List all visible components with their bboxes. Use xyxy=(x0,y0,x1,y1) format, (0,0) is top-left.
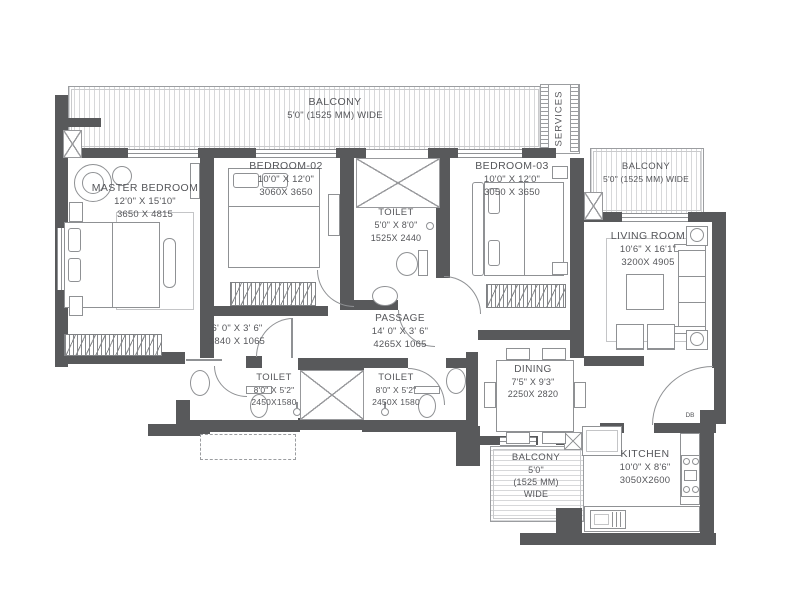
room-name: LIVING ROOM xyxy=(588,230,708,243)
wall xyxy=(446,358,468,368)
wc-bowl xyxy=(396,252,418,276)
wall xyxy=(688,212,714,222)
label-passage: PASSAGE 14' 0" X 3' 6" 4265X 1065 xyxy=(345,312,455,351)
room-size-ft: 5'0" X 8'0" xyxy=(356,219,436,232)
dining-chair xyxy=(506,432,530,444)
room-name: TOILET xyxy=(358,372,434,384)
room-name: TOILET xyxy=(356,206,436,219)
armchair-living xyxy=(616,324,644,350)
label-passage-small: 6' 0" X 3' 6" 1840 X 1065 xyxy=(180,322,294,348)
room-size-mm: 4265X 1065 xyxy=(345,338,455,351)
door-arc-bedroom-03 xyxy=(444,276,481,314)
wall xyxy=(198,148,256,158)
room-name: TOILET xyxy=(238,372,310,384)
burner xyxy=(683,486,690,493)
room-name: KITCHEN xyxy=(595,448,695,461)
chair-back-line xyxy=(616,348,644,350)
wardrobe-bedroom-03 xyxy=(486,284,566,308)
label-dining: DINING 7'5" X 9'3" 2250X 2820 xyxy=(493,364,573,400)
room-size-ft: 10'0" X 8'6" xyxy=(595,461,695,474)
wardrobe-bedroom-02 xyxy=(230,282,316,306)
wall xyxy=(63,118,101,127)
floor-plan: BALCONY 5'0" (1525 MM) WIDE SERVICES MAS… xyxy=(0,0,800,600)
wall xyxy=(298,358,364,370)
wall xyxy=(714,366,726,412)
bench-master xyxy=(163,238,176,288)
room-name: PASSAGE xyxy=(345,312,455,325)
label-living-room: LIVING ROOM 10'6" X 16'1" 3200X 4905 xyxy=(588,230,708,269)
room-name: DINING xyxy=(493,364,573,376)
shaft-toilet-mid xyxy=(356,158,440,208)
room-size-ft: 8'0" X 5'2" xyxy=(358,384,434,396)
ac-ledge-dashed xyxy=(200,434,296,460)
wardrobe-master xyxy=(64,334,162,356)
room-size-ft: 6' 0" X 3' 6" xyxy=(180,322,294,335)
shaft-top-left xyxy=(63,130,82,158)
window-bedroom-02 xyxy=(256,149,336,158)
room-size-mm: 1525X 2440 xyxy=(356,232,436,245)
label-toilet-left: TOILET 8'0" X 5'2" 2450X1580 xyxy=(238,372,310,408)
basin xyxy=(190,370,210,396)
room-size-mm: 3200X 4905 xyxy=(588,256,708,269)
label-balcony-right: BALCONY 5'0" (1525 MM) WIDE xyxy=(590,160,702,186)
wall xyxy=(456,426,480,466)
chair-back-line xyxy=(647,348,675,350)
nightstand xyxy=(552,262,568,275)
db-text: DB xyxy=(678,412,702,420)
pillow xyxy=(488,240,500,266)
room-size-1: 5'0" xyxy=(492,464,580,476)
dining-chair xyxy=(506,348,530,360)
wall xyxy=(362,420,468,432)
dresser-bedroom-02 xyxy=(328,194,340,236)
room-size-mm: 3050 X 3650 xyxy=(452,186,572,199)
room-name: BALCONY xyxy=(492,452,580,464)
label-balcony-bottom: BALCONY 5'0" (1525 MM) WIDE xyxy=(492,452,580,500)
room-size-2: (1525 MM) xyxy=(492,476,580,488)
room-size-3: WIDE xyxy=(492,488,580,500)
shower-head xyxy=(293,408,301,416)
dining-chair xyxy=(574,382,586,408)
dining-chair xyxy=(542,432,566,444)
room-size-ft: 10'0" X 12'0" xyxy=(226,173,346,186)
basin xyxy=(372,286,398,306)
room-name: BEDROOM-02 xyxy=(226,160,346,173)
room-size-ft: 14' 0" X 3' 6" xyxy=(345,325,455,338)
wall xyxy=(428,148,458,158)
label-services: SERVICES xyxy=(540,84,578,152)
lamp-icon xyxy=(690,332,704,346)
window-bedroom-03 xyxy=(458,149,522,158)
wall xyxy=(246,356,262,368)
room-size-ft: 8'0" X 5'2" xyxy=(238,384,310,396)
label-bedroom-03: BEDROOM-03 10'0" X 12'0" 3050 X 3650 xyxy=(452,160,572,199)
wall xyxy=(520,533,716,545)
room-size-mm: 2450X 1580 xyxy=(358,396,434,408)
window-living-balcony xyxy=(622,213,688,222)
label-db: DB xyxy=(678,412,702,420)
wall xyxy=(570,158,584,358)
coffee-table xyxy=(626,274,664,310)
label-balcony-top: BALCONY 5'0" (1525 MM) WIDE xyxy=(230,96,440,122)
blanket-line xyxy=(228,206,320,207)
armchair-living xyxy=(647,324,675,350)
wall xyxy=(214,306,328,316)
label-bedroom-02: BEDROOM-02 10'0" X 12'0" 3060X 3650 xyxy=(226,160,346,199)
wall xyxy=(584,356,644,366)
sofa-cushion-line xyxy=(678,276,706,277)
wall xyxy=(478,330,570,340)
room-size-ft: 10'6" X 16'1" xyxy=(588,243,708,256)
burner xyxy=(692,486,699,493)
nightstand xyxy=(69,296,83,316)
shaft-bedroom-03 xyxy=(584,192,603,220)
room-size-mm: 3650 X 4815 xyxy=(75,208,215,221)
room-name: SERVICES xyxy=(554,90,565,146)
dining-chair xyxy=(542,348,566,360)
room-size-mm: 1840 X 1065 xyxy=(180,335,294,348)
room-size-ft: 7'5" X 9'3" xyxy=(493,376,573,388)
room-size-mm: 2250X 2820 xyxy=(493,388,573,400)
room-name: BALCONY xyxy=(230,96,440,109)
label-toilet-right: TOILET 8'0" X 5'2" 2450X 1580 xyxy=(358,372,434,408)
blanket-master xyxy=(112,222,160,308)
wall xyxy=(700,423,714,545)
shower-head xyxy=(381,408,389,416)
wall xyxy=(362,358,408,368)
pillow xyxy=(68,258,81,282)
sink-drainer xyxy=(612,512,624,527)
label-master-bedroom: MASTER BEDROOM 12'0" X 15'10" 3650 X 481… xyxy=(75,182,215,221)
room-size-ft: 10'0" X 12'0" xyxy=(452,173,572,186)
room-size-mm: 2450X1580 xyxy=(238,396,310,408)
wc-tank xyxy=(418,250,428,276)
shaft-kitchen xyxy=(564,432,582,450)
pillow xyxy=(68,228,81,252)
room-size-mm: 3060X 3650 xyxy=(226,186,346,199)
room-name: BALCONY xyxy=(590,160,702,173)
room-size: 5'0" (1525 MM) WIDE xyxy=(230,109,440,122)
door-arc-bedroom-02 xyxy=(317,270,354,307)
sink-basin xyxy=(594,514,609,525)
room-name: MASTER BEDROOM xyxy=(75,182,215,195)
window-master-bedroom xyxy=(128,149,198,158)
wall xyxy=(466,352,478,432)
room-size-ft: 12'0" X 15'10" xyxy=(75,195,215,208)
wall-threshold xyxy=(186,359,222,361)
label-kitchen: KITCHEN 10'0" X 8'6" 3050X2600 xyxy=(595,448,695,487)
wall xyxy=(712,212,726,368)
wall xyxy=(336,148,366,158)
label-toilet-mid: TOILET 5'0" X 8'0" 1525X 2440 xyxy=(356,206,436,245)
room-size: 5'0" (1525 MM) WIDE xyxy=(590,173,702,186)
sofa-cushion-line xyxy=(678,302,706,303)
room-size-mm: 3050X2600 xyxy=(595,474,695,487)
basin xyxy=(446,368,466,394)
room-name: BEDROOM-03 xyxy=(452,160,572,173)
wall xyxy=(556,508,582,536)
